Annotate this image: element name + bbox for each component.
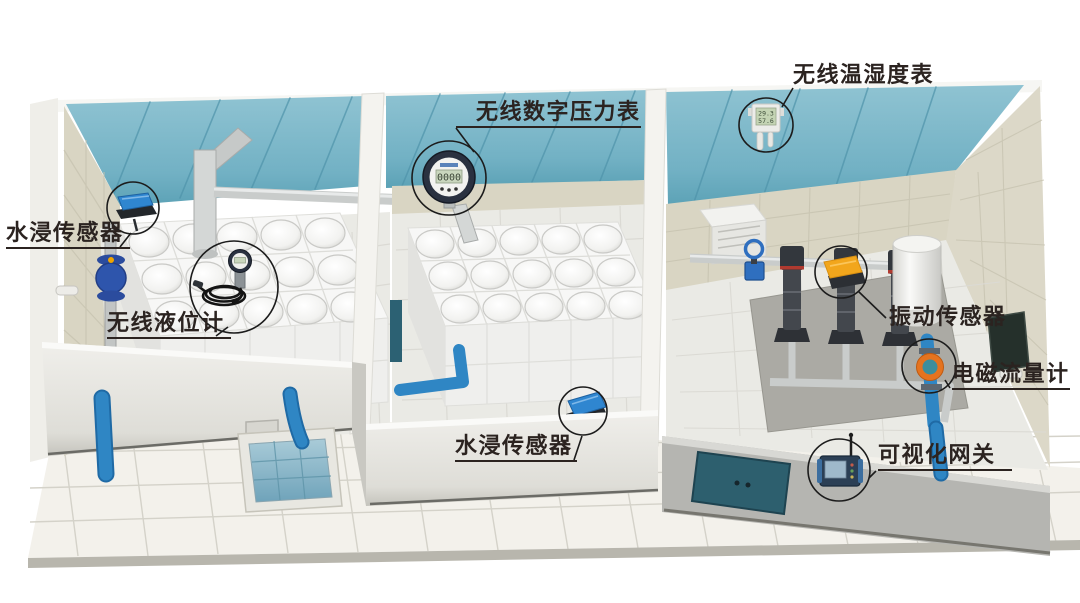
room-middle: 0000	[390, 151, 658, 448]
label-water-leak-sensor-left: 水浸传感器	[6, 220, 130, 249]
label-electromagnetic-flowmeter: 电磁流量计	[952, 361, 1070, 390]
label-water-leak-sensor-floor: 水浸传感器	[455, 433, 577, 462]
tank-manholes	[416, 225, 647, 323]
label-wireless-temp-humidity-meter: 无线温湿度表	[793, 62, 934, 89]
sump-pit	[238, 428, 342, 512]
wall-mounted-pipe-left	[390, 300, 402, 362]
pump-room-3d-diagram: 0000	[0, 0, 1080, 603]
label-vibration-sensor: 振动传感器	[889, 304, 1007, 331]
label-wireless-digital-pressure-gauge: 无线数字压力表	[456, 99, 641, 128]
drain-pipe-left	[102, 398, 106, 474]
label-wireless-level-gauge: 无线液位计	[107, 310, 231, 339]
label-visual-gateway: 可视化网关	[878, 442, 1012, 471]
humidity-lcd: 57.6	[758, 117, 774, 125]
wall-pipe-stub	[56, 286, 78, 295]
scene-illustration: 0000	[0, 0, 1080, 603]
pressure-lcd: 0000	[437, 173, 461, 184]
